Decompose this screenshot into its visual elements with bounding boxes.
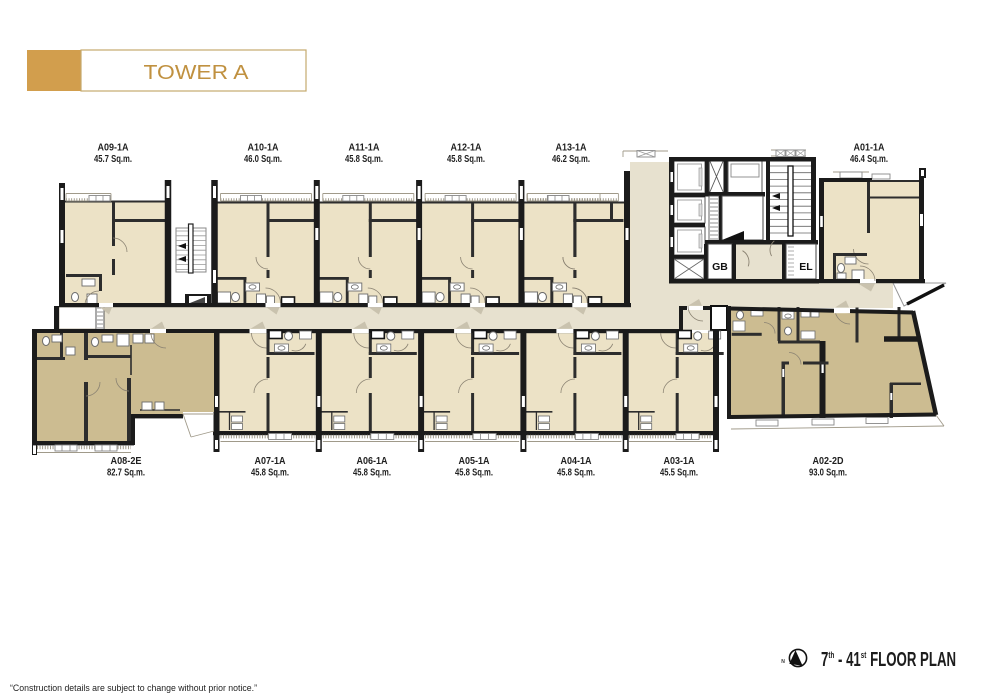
svg-text:A08-2E: A08-2E <box>111 456 142 467</box>
svg-text:“Construction details are subj: “Construction details are subject to cha… <box>10 683 257 694</box>
svg-text:45.8 Sq.m.: 45.8 Sq.m. <box>353 468 391 479</box>
svg-text:82.7 Sq.m.: 82.7 Sq.m. <box>107 468 145 479</box>
svg-text:93.0 Sq.m.: 93.0 Sq.m. <box>809 468 847 479</box>
svg-text:45.8 Sq.m.: 45.8 Sq.m. <box>455 468 493 479</box>
svg-text:A02-2D: A02-2D <box>813 456 844 467</box>
svg-text:A12-1A: A12-1A <box>451 143 482 154</box>
svg-text:GB: GB <box>712 261 728 273</box>
svg-text:46.0 Sq.m.: 46.0 Sq.m. <box>244 154 282 165</box>
svg-text:A05-1A: A05-1A <box>459 456 490 467</box>
svg-text:45.8 Sq.m.: 45.8 Sq.m. <box>251 468 289 479</box>
svg-text:A10-1A: A10-1A <box>248 143 279 154</box>
svg-text:A04-1A: A04-1A <box>561 456 592 467</box>
svg-text:A07-1A: A07-1A <box>255 456 286 467</box>
svg-text:7th - 41st FLOOR PLAN: 7th - 41st FLOOR PLAN <box>821 648 956 670</box>
svg-text:45.7 Sq.m.: 45.7 Sq.m. <box>94 154 132 165</box>
svg-text:46.2 Sq.m.: 46.2 Sq.m. <box>552 154 590 165</box>
svg-text:A09-1A: A09-1A <box>98 143 129 154</box>
svg-text:N: N <box>781 659 785 665</box>
svg-text:45.8 Sq.m.: 45.8 Sq.m. <box>557 468 595 479</box>
svg-text:TOWER A: TOWER A <box>144 62 250 84</box>
svg-text:45.5 Sq.m.: 45.5 Sq.m. <box>660 468 698 479</box>
svg-text:A03-1A: A03-1A <box>664 456 695 467</box>
svg-text:A01-1A: A01-1A <box>854 143 885 154</box>
svg-text:A11-1A: A11-1A <box>349 143 380 154</box>
svg-text:46.4 Sq.m.: 46.4 Sq.m. <box>850 154 888 165</box>
svg-text:A13-1A: A13-1A <box>556 143 587 154</box>
svg-text:A06-1A: A06-1A <box>357 456 388 467</box>
svg-text:EL: EL <box>799 261 813 273</box>
svg-text:45.8 Sq.m.: 45.8 Sq.m. <box>345 154 383 165</box>
svg-text:45.8 Sq.m.: 45.8 Sq.m. <box>447 154 485 165</box>
